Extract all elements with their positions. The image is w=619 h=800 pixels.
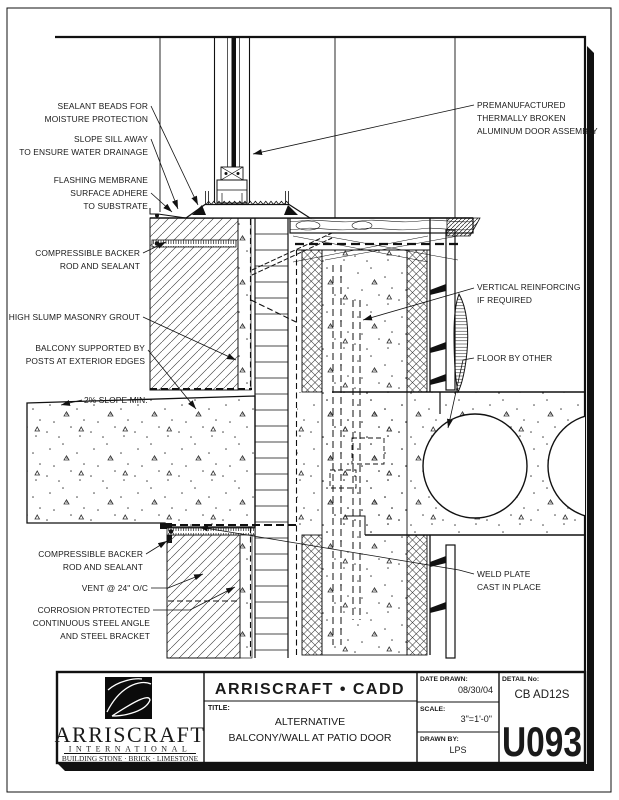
detail-code: CB AD12S bbox=[515, 689, 570, 701]
vertical-reinforcing-bar bbox=[454, 294, 468, 392]
annotation-door-assembly: PREMANUFACTURED THERMALLY BROKEN ALUMINU… bbox=[253, 100, 598, 154]
annotation-text: FLASHING MEMBRANE bbox=[54, 175, 149, 185]
steel-plate-upper bbox=[446, 230, 455, 390]
annotation-text: COMPRESSIBLE BACKER bbox=[38, 549, 143, 559]
annotation-text: ROD AND SEALANT bbox=[63, 562, 143, 572]
leader-line bbox=[151, 193, 172, 212]
annotation-text: IF REQUIRED bbox=[477, 295, 532, 305]
drawing-title-line1: ALTERNATIVE bbox=[275, 716, 345, 728]
title-block: ARRISCRAFT INTERNATIONAL BUILDING STONE … bbox=[55, 672, 585, 765]
upper-masonry-veneer bbox=[150, 218, 296, 390]
core-void-1 bbox=[423, 414, 527, 518]
company-tagline: BUILDING STONE · BRICK · LIMESTONE bbox=[62, 754, 199, 763]
detail-number: U093 bbox=[502, 718, 582, 765]
annotation-text: CONTINUOUS STEEL ANGLE bbox=[33, 618, 151, 628]
drawn-by-label: DRAWN BY: bbox=[420, 736, 459, 743]
insulation-lower-right bbox=[407, 535, 427, 655]
date-value: 08/30/04 bbox=[458, 685, 493, 695]
annotation-text: BALCONY SUPPORTED BY bbox=[35, 343, 145, 353]
annotation-text: SURFACE ADHERE bbox=[70, 188, 148, 198]
annotation-text: HIGH SLUMP MASONRY GROUT bbox=[9, 312, 140, 322]
annotation-text: TO ENSURE WATER DRAINAGE bbox=[19, 147, 148, 157]
detail-drawing: SEALANT BEADS FOR MOISTURE PROTECTION SL… bbox=[0, 0, 619, 800]
date-label: DATE DRAWN: bbox=[420, 676, 468, 683]
leader-line bbox=[146, 541, 167, 554]
insulation-lower-left bbox=[302, 535, 322, 655]
annotation-text: CAST IN PLACE bbox=[477, 582, 541, 592]
annotation-text: VERTICAL REINFORCING bbox=[477, 282, 580, 292]
scale-value: 3"=1'-0" bbox=[461, 714, 492, 724]
leader-line bbox=[151, 139, 178, 209]
door-assembly bbox=[150, 38, 473, 218]
steel-plate-lower bbox=[446, 545, 455, 658]
annotation-text: COMPRESSIBLE BACKER bbox=[35, 248, 140, 258]
annotation-text: WELD PLATE bbox=[477, 569, 531, 579]
detail-sheet: SEALANT BEADS FOR MOISTURE PROTECTION SL… bbox=[0, 0, 619, 800]
company-name: ARRISCRAFT bbox=[55, 722, 206, 747]
cadd-header: ARRISCRAFT • CADD bbox=[215, 681, 405, 698]
annotation-text: MOISTURE PROTECTION bbox=[45, 114, 148, 124]
annotation-text: ROD AND SEALANT bbox=[60, 261, 140, 271]
annotation-backer-bottom: COMPRESSIBLE BACKER ROD AND SEALANT bbox=[38, 541, 167, 572]
leader-line bbox=[151, 106, 198, 205]
annotation-backer-top: COMPRESSIBLE BACKER ROD AND SEALANT bbox=[35, 242, 166, 271]
annotation-text: SEALANT BEADS FOR bbox=[58, 101, 148, 111]
annotation-text: TO SUBSTRATE bbox=[83, 201, 148, 211]
sealant-dot-bottom bbox=[169, 529, 174, 534]
lower-masonry-veneer bbox=[167, 527, 255, 658]
annotation-text: PREMANUFACTURED bbox=[477, 100, 566, 110]
drawn-by-value: LPS bbox=[449, 745, 466, 755]
annotation-flashing-membrane: FLASHING MEMBRANE SURFACE ADHERE TO SUBS… bbox=[54, 175, 172, 212]
hollow-core-floor bbox=[297, 392, 619, 535]
door-bottom-rail bbox=[217, 180, 247, 203]
scale-label: SCALE: bbox=[420, 706, 445, 713]
annotation-text: ALUMINUM DOOR ASSEMBLY bbox=[477, 126, 598, 136]
detail-label: DETAIL No: bbox=[502, 676, 539, 683]
annotation-text: VENT @ 24" O/C bbox=[82, 583, 148, 593]
extent-lines bbox=[160, 37, 455, 218]
leader-line bbox=[253, 105, 474, 154]
annotation-text: FLOOR BY OTHER bbox=[477, 353, 552, 363]
annotation-text: AND STEEL BRACKET bbox=[60, 631, 150, 641]
shadow-bottom bbox=[58, 764, 594, 771]
annotation-text: CORROSION PRTOTECTED bbox=[38, 605, 150, 615]
insulation-upper-right bbox=[407, 250, 427, 392]
insulation-upper-left bbox=[302, 250, 322, 392]
annotation-text: 2% SLOPE MIN. bbox=[84, 395, 148, 405]
shadow-right bbox=[587, 46, 594, 771]
balcony-slab bbox=[27, 396, 298, 543]
drawing-title-line2: BALCONY/WALL AT PATIO DOOR bbox=[229, 732, 392, 744]
annotation-text: SLOPE SILL AWAY bbox=[74, 134, 148, 144]
title-label: TITLE: bbox=[208, 705, 230, 712]
annotation-text: POSTS AT EXTERIOR EDGES bbox=[26, 356, 146, 366]
door-glazing bbox=[232, 38, 237, 168]
company-subtitle: INTERNATIONAL bbox=[69, 745, 192, 754]
annotation-text: THERMALLY BROKEN bbox=[477, 113, 566, 123]
